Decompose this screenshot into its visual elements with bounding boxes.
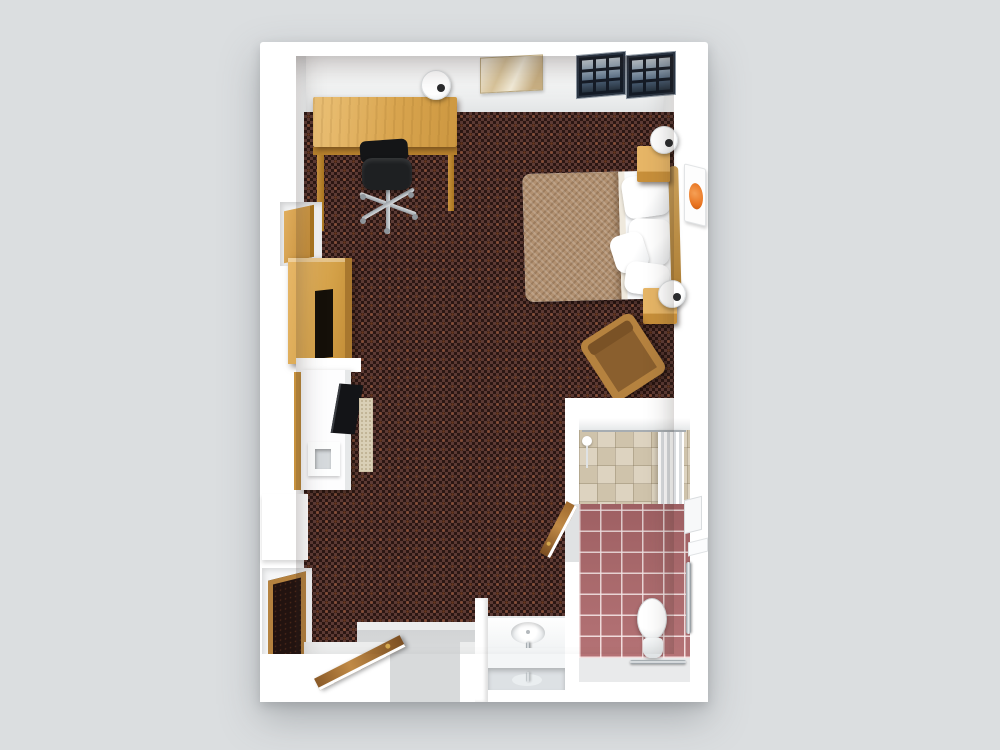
- window-grid-left: [577, 52, 625, 98]
- chair-caster: [384, 228, 390, 234]
- shower-curtain: [658, 431, 684, 504]
- office-chair: [362, 158, 412, 190]
- wall-art-orange-circle: [684, 163, 706, 226]
- tv-slot: [315, 289, 333, 359]
- entry-wall-face: [357, 622, 475, 630]
- half-wall: [262, 494, 308, 560]
- vanity-front: [488, 648, 565, 668]
- bottom-wall-face: [460, 642, 475, 654]
- curtain-rod: [582, 430, 686, 432]
- bathroom-tile-floor: [579, 504, 690, 658]
- toilet-base: [643, 638, 663, 658]
- bottom-wall: [460, 654, 475, 702]
- grab-bar-horizontal: [630, 660, 686, 664]
- floor-mat: [359, 398, 373, 472]
- lamp-bulb: [665, 139, 673, 147]
- orange-circle: [689, 182, 703, 211]
- desk-lamp: [421, 70, 451, 100]
- chair-caster: [408, 192, 414, 198]
- wall-panel: [684, 496, 702, 534]
- entry-threshold: [390, 654, 460, 702]
- wood-trim: [294, 372, 301, 490]
- bathroom-left-wall: [565, 398, 579, 504]
- door-knob: [384, 643, 391, 650]
- bottom-wall: [488, 690, 565, 702]
- vanity-mirror: [488, 668, 565, 690]
- window-grid-right: [627, 52, 675, 98]
- bathroom-top-wall: [565, 398, 708, 418]
- lamp-bulb: [673, 293, 681, 301]
- bed-blanket: [522, 172, 621, 302]
- bedside-lamp: [658, 280, 686, 308]
- chair-caster: [412, 214, 418, 220]
- mini-fridge: [308, 442, 340, 476]
- sink-drain: [526, 630, 530, 634]
- fridge-recess: [315, 449, 331, 469]
- faucet-reflection: [526, 672, 530, 682]
- lamp-bulb: [437, 84, 445, 92]
- door-knob: [546, 541, 551, 546]
- chair-caster: [360, 218, 366, 224]
- bathroom-wall-face: [579, 418, 690, 430]
- chair-caster: [360, 194, 366, 200]
- wall-shelf: [284, 205, 314, 263]
- bottom-wall: [565, 682, 708, 702]
- floor-plan: [260, 42, 708, 702]
- vanity-half-wall: [475, 598, 488, 702]
- desk-leg: [448, 155, 454, 211]
- wall-art-abstract: [480, 54, 543, 93]
- shower-head-icon: [582, 436, 592, 446]
- toilet: [637, 598, 667, 640]
- shower-hose: [586, 446, 588, 468]
- grab-bar-vertical: [686, 562, 691, 634]
- bedside-lamp: [650, 126, 678, 154]
- bathroom-left-wall: [565, 562, 579, 682]
